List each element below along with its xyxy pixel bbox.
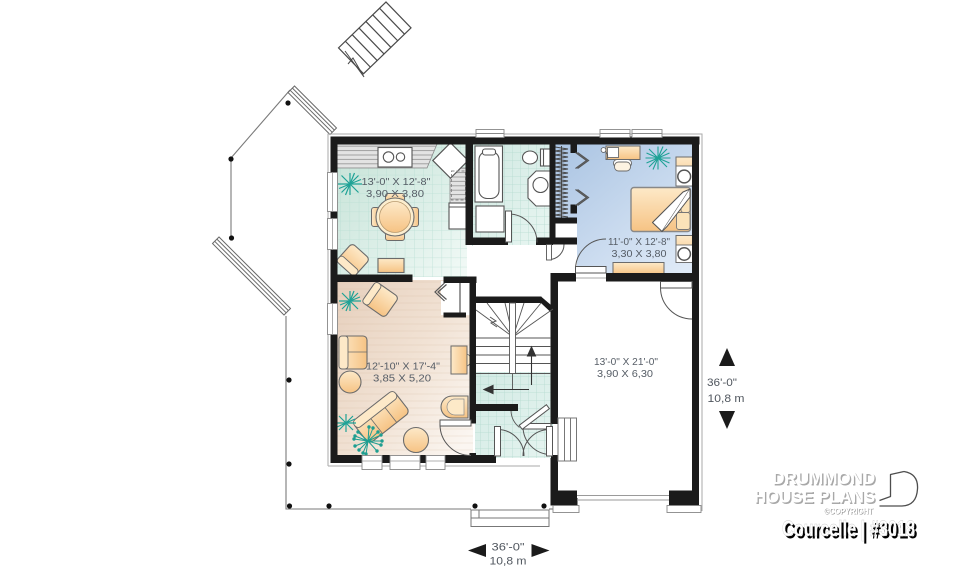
svg-text:©COPYRIGHT: ©COPYRIGHT [824,507,873,516]
svg-text:13'-0" X 21'-0": 13'-0" X 21'-0" [594,357,658,368]
svg-text:DRUMMOND: DRUMMOND [772,468,875,488]
svg-text:Courcelle | #3018: Courcelle | #3018 [782,516,915,541]
svg-text:3,30 X 3,80: 3,30 X 3,80 [612,249,667,260]
svg-text:3,90 X 6,30: 3,90 X 6,30 [597,369,653,380]
svg-text:3,90 X 3,80: 3,90 X 3,80 [366,189,424,200]
svg-text:13'-0" X 12'-8": 13'-0" X 12'-8" [362,177,431,188]
svg-text:11'-0" X 12'-8": 11'-0" X 12'-8" [608,237,670,248]
svg-text:36'-0": 36'-0" [492,542,525,554]
svg-text:36'-0": 36'-0" [707,377,737,389]
svg-text:12'-10" X 17'-4": 12'-10" X 17'-4" [366,362,440,373]
svg-text:10,8 m: 10,8 m [708,393,745,405]
svg-text:HOUSE PLANS: HOUSE PLANS [754,487,875,507]
svg-text:3,85 X 5,20: 3,85 X 5,20 [373,374,431,385]
svg-text:10,8 m: 10,8 m [490,556,527,568]
